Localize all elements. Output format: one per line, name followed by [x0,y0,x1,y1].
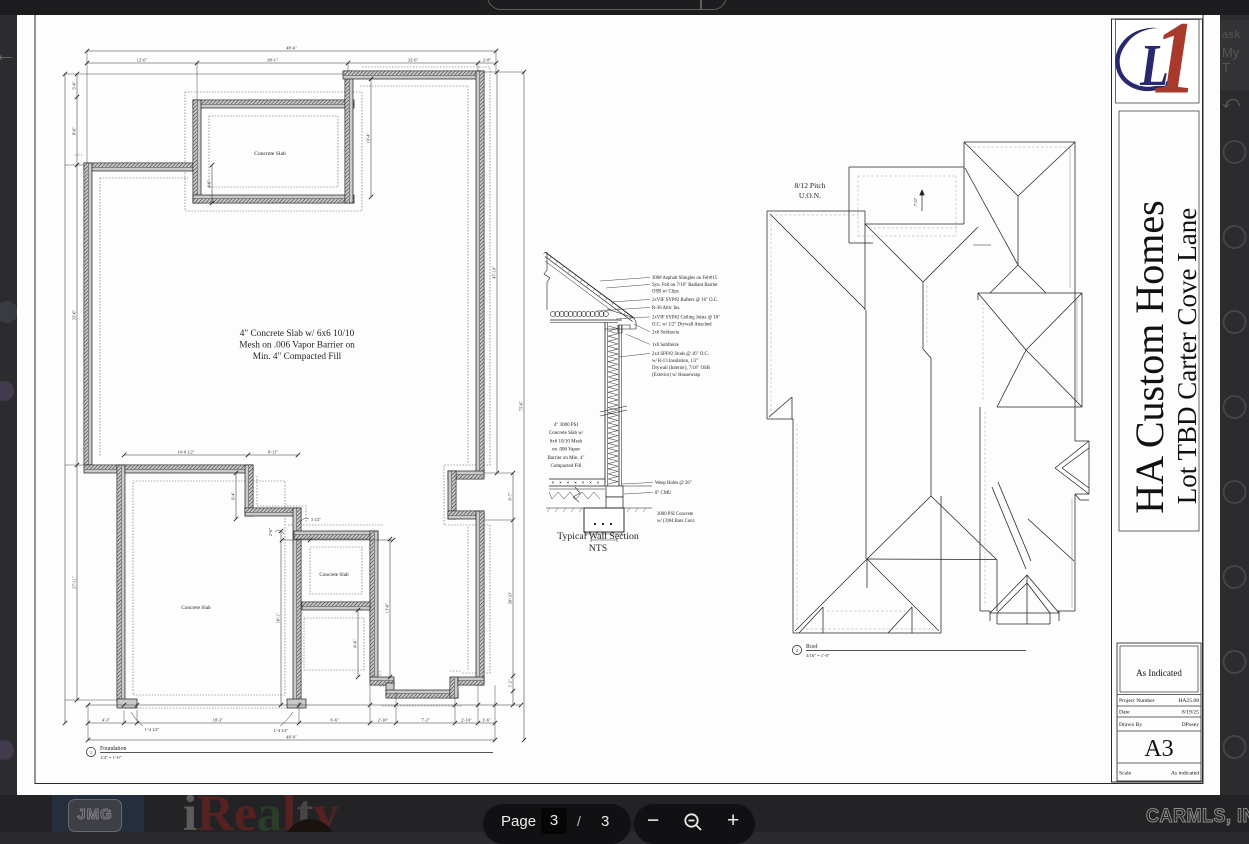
svg-text:38'-1": 38'-1" [267,58,278,63]
svg-text:Min. 4" Compacted Fill: Min. 4" Compacted Fill [253,352,342,362]
svg-text:48'-6": 48'-6" [286,46,297,51]
svg-text:NTS: NTS [589,543,608,554]
svg-text:8'-11": 8'-11" [268,450,278,455]
svg-text:2: 2 [796,648,798,653]
svg-text:Concrete Slab: Concrete Slab [319,572,349,578]
svg-text:A3: A3 [1144,736,1173,762]
svg-text:32'-6": 32'-6" [408,58,419,63]
svg-text:Concrete Slab w/: Concrete Slab w/ [549,431,584,436]
svg-text:2'-8": 2'-8" [483,58,492,63]
svg-text:Compacted Fill: Compacted Fill [551,464,583,469]
svg-text:Project Number: Project Number [1119,698,1155,704]
svg-text:Syn. Felt on 7/16" Radiant Bar: Syn. Felt on 7/16" Radiant Barrier [652,283,718,288]
svg-text:1/4" = 1'-0": 1/4" = 1'-0" [100,755,122,760]
svg-text:4'-3": 4'-3" [102,718,111,723]
svg-text:OSB w/ Clips: OSB w/ Clips [652,290,679,295]
svg-text:1'-4 1/2": 1'-4 1/2" [145,727,160,732]
svg-text:Concrete Slab: Concrete Slab [181,605,211,611]
svg-text:4'-6": 4'-6" [207,180,212,189]
svg-text:L: L [1139,32,1169,98]
svg-text:3000 PSI Concrete: 3000 PSI Concrete [657,512,693,517]
svg-text:HA Custom Homes: HA Custom Homes [1127,200,1172,513]
svg-text:2'-10": 2'-10" [461,718,472,723]
svg-text:Lot TBD Carter Cove Lane: Lot TBD Carter Cove Lane [1172,208,1202,504]
svg-text:8'-6": 8'-6" [72,127,77,136]
svg-text:4" 3000 PSI: 4" 3000 PSI [554,423,579,428]
svg-text:(Exterior) w/ Housewrap: (Exterior) w/ Housewrap [652,373,701,378]
svg-text:2'-6": 2'-6" [482,718,491,723]
svg-text:2x4 SPF#2 Studs @ 16" O.C.: 2x4 SPF#2 Studs @ 16" O.C. [652,352,709,357]
svg-text:Barrier on Min. 4": Barrier on Min. 4" [547,456,584,461]
svg-text:18'-2": 18'-2" [213,718,224,723]
svg-text:HA25.08: HA25.08 [1178,698,1199,704]
svg-text:2'-6": 2'-6" [268,528,273,536]
svg-text:27'-11": 27'-11" [72,576,77,589]
svg-text:Typical Wall Section: Typical Wall Section [557,531,639,542]
svg-text:1: 1 [90,750,92,755]
svg-text:16'-1": 16'-1" [276,613,281,624]
svg-text:U.O.N.: U.O.N. [799,191,821,200]
svg-text:Weep Holes @ 26": Weep Holes @ 26" [655,481,692,486]
svg-text:2'-10": 2'-10" [378,718,389,723]
svg-text:13'-6": 13'-6" [385,603,390,614]
svg-text:Mesh on .006 Vapor Barrier on: Mesh on .006 Vapor Barrier on [239,341,355,351]
svg-text:33'-6": 33'-6" [72,310,77,321]
svg-text:75'-6": 75'-6" [519,401,524,412]
svg-text:9'-4": 9'-4" [231,492,236,501]
svg-text:3/16" = 1'-0": 3/16" = 1'-0" [806,653,830,658]
svg-text:58'-10": 58'-10" [508,591,513,604]
svg-text:48'-0": 48'-0" [286,735,297,740]
svg-text:9'-7": 9'-7" [508,492,513,501]
svg-text:8'-6": 8'-6" [353,639,358,648]
svg-text:300# Asphalt Shingles on Felt#: 300# Asphalt Shingles on Felt#15 [652,276,718,281]
svg-text:1'-4 1/2": 1'-4 1/2" [274,728,289,733]
svg-text:on .006 Vapor: on .006 Vapor [552,448,580,453]
svg-text:w/ R-13 Insulation, 1/2": w/ R-13 Insulation, 1/2" [652,359,699,364]
svg-text:2xVIF SYP#2 Rafters @ 16" O.C.: 2xVIF SYP#2 Rafters @ 16" O.C. [652,298,718,303]
svg-text:Drywall (Interior), 7/16" OSB: Drywall (Interior), 7/16" OSB [652,366,710,371]
svg-text:3 1/2": 3 1/2" [311,517,321,522]
svg-text:6x6 10/10 Mesh: 6x6 10/10 Mesh [550,439,583,444]
svg-text:7'/12": 7'/12" [914,197,918,206]
svg-text:10'-4": 10'-4" [366,133,371,144]
svg-text:8" CMU: 8" CMU [655,491,672,496]
svg-text:8/19/25: 8/19/25 [1182,710,1199,716]
svg-text:Date: Date [1119,710,1130,716]
svg-text:1x6 Subfreize: 1x6 Subfreize [652,343,679,348]
svg-text:Roof: Roof [806,643,818,650]
svg-text:As indicated: As indicated [1171,771,1199,777]
svg-text:O.C. w/ 1/2" Drywall Attached: O.C. w/ 1/2" Drywall Attached [652,323,712,328]
svg-text:12'-6": 12'-6" [137,58,148,63]
svg-text:Foundation: Foundation [100,746,127,752]
svg-text:8/12 Pitch: 8/12 Pitch [794,181,825,190]
svg-text:w/ (3)#4 Bars Cont.: w/ (3)#4 Bars Cont. [657,519,695,524]
svg-text:6'-6": 6'-6" [330,718,339,723]
svg-text:Scale: Scale [1119,771,1132,777]
svg-text:2x6 Subfascia: 2x6 Subfascia [652,331,680,336]
svg-text:1'-2": 1'-2" [508,679,513,688]
svg-text:2xVIF SYP#2 Ceiling Joists @ 1: 2xVIF SYP#2 Ceiling Joists @ 16" [652,316,720,321]
svg-text:As Indicated: As Indicated [1136,668,1182,678]
svg-text:R-38 Attic Ins.: R-38 Attic Ins. [652,306,680,311]
svg-text:7'-2": 7'-2" [421,718,430,723]
svg-text:Concrete Slab: Concrete Slab [254,151,286,157]
svg-text:Drawn By: Drawn By [1119,722,1142,728]
svg-text:14'-0 1/2": 14'-0 1/2" [178,450,195,455]
svg-text:4" Concrete Slab w/ 6x6 10/10: 4" Concrete Slab w/ 6x6 10/10 [240,329,355,339]
svg-text:47'-10": 47'-10" [492,266,497,279]
svg-text:5'-6": 5'-6" [72,81,77,90]
svg-text:DPosey: DPosey [1182,722,1200,728]
